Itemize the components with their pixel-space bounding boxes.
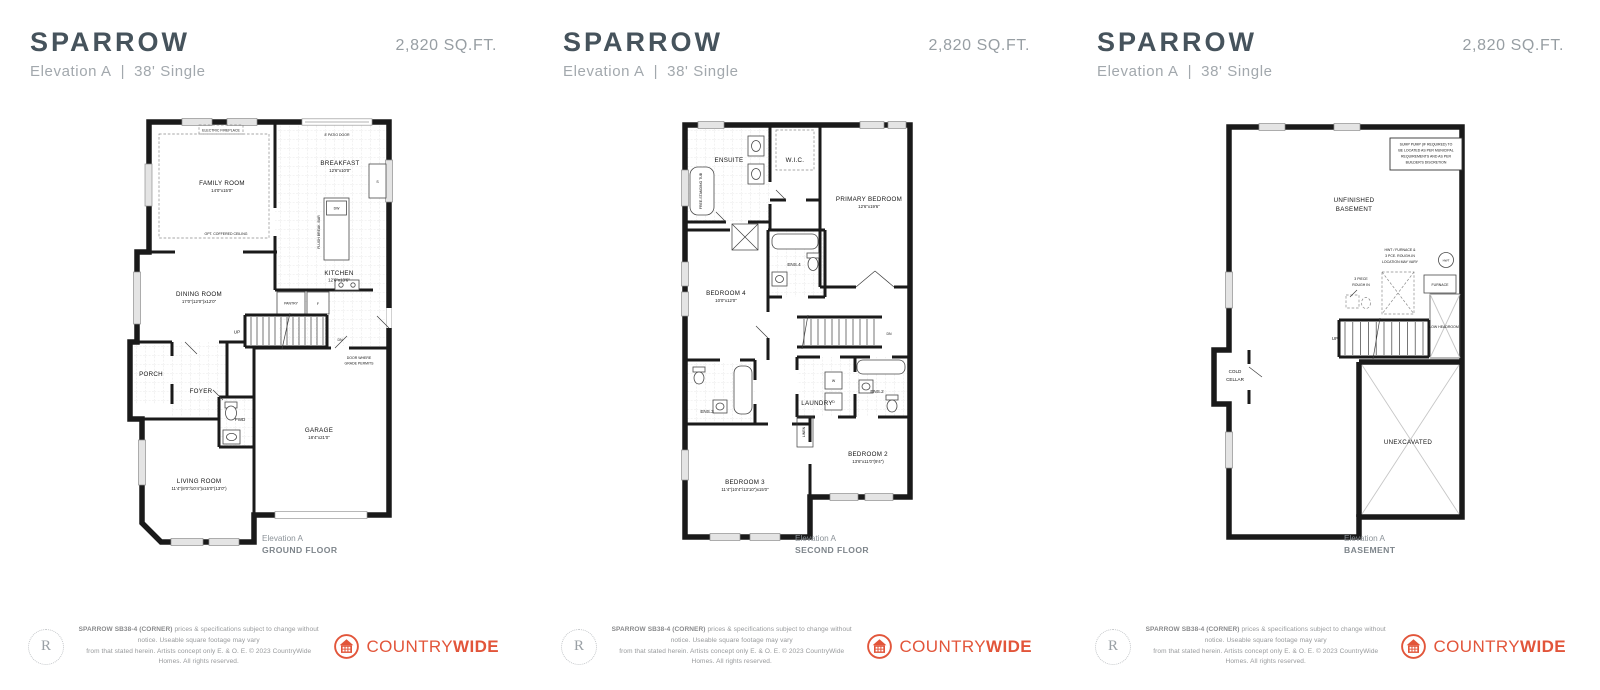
breakfast-label: BREAKFAST — [320, 160, 359, 167]
free-standing-tub-label: FREE-STANDING TUB — [699, 172, 703, 209]
rough-in-label-2: ROUGH IN — [1352, 283, 1370, 287]
monogram-letter: R — [1108, 638, 1118, 655]
sqft-label: 2,820 SQ.FT. — [396, 28, 497, 55]
caption-elevation: Elevation A — [795, 534, 837, 543]
countrywide-logo: COUNTRYWIDE — [333, 633, 499, 660]
ens3-label: ENS.3 — [700, 409, 714, 414]
bedroom2-label: BEDROOM 2 — [848, 451, 888, 458]
hwt-label: HWT — [1442, 259, 1449, 263]
logo-country: COUNTRY — [366, 637, 453, 656]
unfinished-basement-label-2: BASEMENT — [1335, 206, 1371, 213]
disclaimer-model: SPARROW SB38-4 (CORNER) — [612, 626, 706, 633]
disclaimer-text-2: from that stated herein. Artists concept… — [1143, 647, 1388, 668]
dining-room-dim: 17'0"(12'0")x12'0" — [181, 299, 216, 304]
sump-note-1: SUMP PUMP (IF REQUIRED) TO — [1399, 143, 1452, 147]
title-block: SPARROW Elevation A | 38' Single — [563, 28, 739, 80]
living-room-label: LIVING ROOM — [176, 478, 221, 485]
plan-caption: Elevation A SECOND FLOOR — [795, 534, 869, 555]
family-room-label: FAMILY ROOM — [199, 180, 245, 187]
caption-floor: BASEMENT — [1344, 545, 1396, 555]
builder-monogram: R — [561, 629, 597, 665]
unfinished-basement-label-1: UNFINISHED — [1333, 197, 1374, 204]
garage-label: GARAGE — [304, 427, 332, 434]
low-headroom-label: LOW HEADROOM — [1429, 325, 1459, 329]
basement-plan: SUMP PUMP (IF REQUIRED) TO BE LOCATED AS… — [1194, 112, 1474, 564]
elevation-label: Elevation A — [30, 63, 112, 80]
disclaimer-model: SPARROW SB38-4 (CORNER) — [79, 626, 173, 633]
builder-monogram: R — [1095, 629, 1131, 665]
divider: | — [1188, 63, 1193, 80]
living-room-dim: 11'4"(8'0"/10'4")x15'0"(13'0") — [171, 486, 227, 491]
fridge-label: F — [316, 302, 318, 306]
family-room-dim: 14'0"x15'0" — [211, 188, 233, 193]
disclaimer-text-2: from that stated herein. Artists concept… — [76, 647, 321, 668]
hwt-note-1: HWT / FURNACE & — [1384, 248, 1416, 252]
unexcavated-label: UNEXCAVATED — [1383, 439, 1432, 446]
footer-disclaimer: SPARROW SB38-4 (CORNER) prices & specifi… — [1143, 625, 1388, 668]
countrywide-house-icon — [866, 633, 893, 660]
dn-label: DN — [337, 338, 343, 342]
divider: | — [121, 63, 126, 80]
ens2-label: ENS.2 — [870, 389, 884, 394]
panel-basement: SPARROW Elevation A | 38' Single 2,820 S… — [1067, 0, 1600, 690]
kitchen-label: KITCHEN — [324, 270, 353, 277]
disclaimer-model: SPARROW SB38-4 (CORNER) — [1146, 626, 1240, 633]
caption-floor: GROUND FLOOR — [262, 545, 338, 555]
coffered-ceiling-label: OPT. COFFERED CEILING — [204, 232, 247, 236]
lot-label: 38' Single — [667, 63, 738, 80]
stairs-up — [1345, 318, 1423, 359]
dining-room-label: DINING ROOM — [176, 291, 222, 298]
builder-monogram: R — [28, 629, 64, 665]
ens4-label: ENS.4 — [787, 262, 801, 267]
divider: | — [654, 63, 659, 80]
grade-door-label-2: GRADE PERMITS — [344, 362, 374, 366]
stairs-down — [797, 315, 882, 349]
dn-label: DN — [886, 332, 892, 336]
page-title: SPARROW — [563, 28, 739, 56]
lot-label: 38' Single — [134, 63, 205, 80]
panel-footer: R SPARROW SB38-4 (CORNER) prices & speci… — [561, 625, 1032, 668]
rough-in-label-1: 3 PIECE — [1354, 277, 1368, 281]
plan-caption: Elevation A GROUND FLOOR — [262, 534, 338, 555]
elevation-label: Elevation A — [1097, 63, 1179, 80]
caption-elevation: Elevation A — [1344, 534, 1386, 543]
footer-disclaimer: SPARROW SB38-4 (CORNER) prices & specifi… — [76, 625, 321, 668]
primary-bedroom-dim: 12'6"x19'6" — [858, 204, 880, 209]
bedroom3-dim: 11'4"(10'4"/13'10")x15'0" — [721, 487, 769, 492]
sqft-label: 2,820 SQ.FT. — [929, 28, 1030, 55]
elevation-label: Elevation A — [563, 63, 645, 80]
title-block: SPARROW Elevation A | 38' Single — [30, 28, 206, 80]
bedroom4-dim: 10'0"x12'0" — [715, 298, 737, 303]
panel-ground-floor: SPARROW Elevation A | 38' Single 2,820 S… — [0, 0, 533, 690]
logo-wide: WIDE — [1520, 637, 1566, 656]
patio-door-label: 8' PATIO DOOR — [324, 133, 350, 137]
monogram-letter: R — [41, 638, 51, 655]
garage-dim: 18'4"x21'0" — [308, 435, 330, 440]
panel-header: SPARROW Elevation A | 38' Single 2,820 S… — [30, 28, 497, 80]
logo-country: COUNTRY — [1433, 637, 1520, 656]
foyer-label: FOYER — [189, 388, 212, 395]
up-label: UP — [233, 330, 239, 335]
cold-cellar-label-1: COLD — [1228, 369, 1241, 374]
countrywide-house-icon — [1400, 633, 1427, 660]
flush-bar-label: FLUSH BREAK. BAR — [317, 215, 321, 249]
ground-floor-plan: 8' PATIO DOOR ELECTRIC FIREPLACE FAMILY … — [127, 112, 407, 564]
ensuite-label: ENSUITE — [714, 157, 743, 164]
kitchen-dim: 12'6"x13'6" — [328, 278, 350, 283]
room-labels: SUMP PUMP (IF REQUIRED) TO BE LOCATED AS… — [1226, 143, 1459, 447]
caption-floor: SECOND FLOOR — [795, 545, 869, 555]
windows — [1225, 124, 1360, 469]
dw-label: DW — [333, 207, 340, 211]
footer-disclaimer: SPARROW SB38-4 (CORNER) prices & specifi… — [609, 625, 854, 668]
countrywide-house-icon — [333, 633, 360, 660]
pantry-label: PANTRY — [284, 302, 299, 306]
subtitle: Elevation A | 38' Single — [1097, 63, 1273, 80]
countrywide-logo: COUNTRYWIDE — [1400, 633, 1566, 660]
subtitle: Elevation A | 38' Single — [563, 63, 739, 80]
pwd-label: PWD — [234, 417, 245, 422]
countrywide-logo: COUNTRYWIDE — [866, 633, 1032, 660]
panel-header: SPARROW Elevation A | 38' Single 2,820 S… — [1097, 28, 1564, 80]
panel-header: SPARROW Elevation A | 38' Single 2,820 S… — [563, 28, 1030, 80]
page-title: SPARROW — [30, 28, 206, 56]
disclaimer-text-2: from that stated herein. Artists concept… — [609, 647, 854, 668]
bedroom3-label: BEDROOM 3 — [725, 479, 765, 486]
sump-note-3: REQUIREMENTS AND AS PER — [1401, 155, 1451, 159]
wic-label: W.I.C. — [785, 157, 804, 164]
cold-cellar-label-2: CELLAR — [1226, 377, 1245, 382]
laundry-label: LAUNDRY — [801, 400, 833, 407]
panel-footer: R SPARROW SB38-4 (CORNER) prices & speci… — [1095, 625, 1566, 668]
title-block: SPARROW Elevation A | 38' Single — [1097, 28, 1273, 80]
caption-elevation: Elevation A — [262, 534, 304, 543]
logo-wide: WIDE — [453, 637, 499, 656]
logo-wide: WIDE — [986, 637, 1032, 656]
furnace-label: FURNACE — [1431, 283, 1449, 287]
up-label: UP — [1331, 336, 1337, 341]
hwt-note-2: 3 PCE. ROUGH-IN — [1385, 254, 1415, 258]
bedroom4-label: BEDROOM 4 — [706, 290, 746, 297]
page-title: SPARROW — [1097, 28, 1273, 56]
breakfast-dim: 12'6"x10'0" — [329, 168, 351, 173]
second-floor-plan: ENSUITE FREE-STANDING TUB W.I.C. PRIMARY… — [660, 112, 940, 564]
plan-caption: Elevation A BASEMENT — [1344, 534, 1396, 555]
primary-bedroom-label: PRIMARY BEDROOM — [835, 196, 901, 203]
monogram-letter: R — [574, 638, 584, 655]
sqft-label: 2,820 SQ.FT. — [1463, 28, 1564, 55]
panel-footer: R SPARROW SB38-4 (CORNER) prices & speci… — [28, 625, 499, 668]
walls — [1214, 127, 1462, 537]
sump-note-4: BUILDER'S DISCRETION — [1405, 161, 1446, 165]
bedroom2-dim: 13'6"x11'0"(9'4") — [852, 459, 884, 464]
subtitle: Elevation A | 38' Single — [30, 63, 206, 80]
porch-label: PORCH — [139, 371, 163, 378]
sump-note-2: BE LOCATED AS PER MUNICIPAL — [1398, 149, 1453, 153]
panel-second-floor: SPARROW Elevation A | 38' Single 2,820 S… — [533, 0, 1066, 690]
electric-fireplace-label: ELECTRIC FIREPLACE — [202, 129, 240, 133]
logo-country: COUNTRY — [899, 637, 986, 656]
lot-label: 38' Single — [1201, 63, 1272, 80]
linen-label: LINEN — [802, 426, 806, 437]
hwt-note-3: LOCATION MAY VARY — [1381, 260, 1418, 264]
grade-door-label-1: DOOR WHERE — [346, 356, 371, 360]
